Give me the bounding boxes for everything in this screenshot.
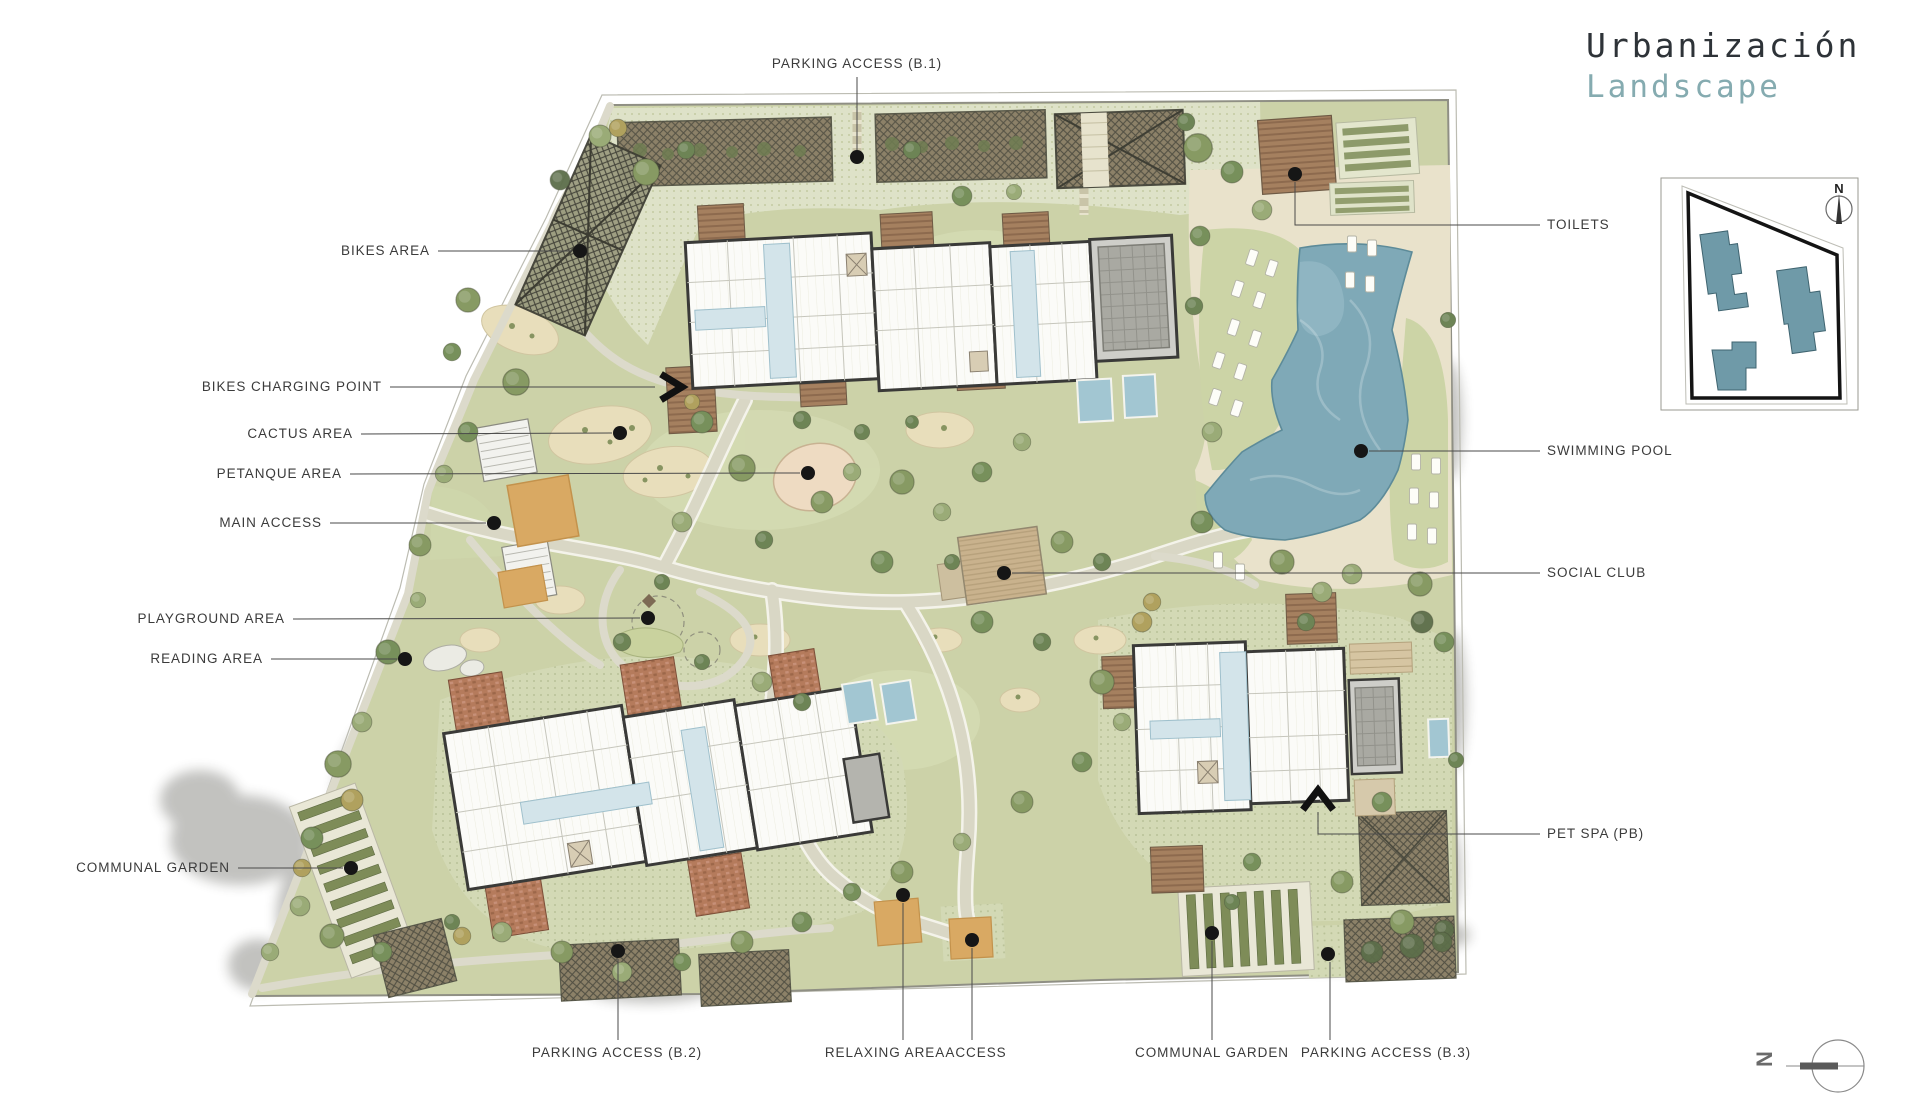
drawing-title-line2: Landscape (1586, 69, 1860, 105)
label-pet-spa: PET SPA (PB) (1547, 826, 1644, 842)
label-cactus-area: CACTUS AREA (247, 426, 353, 442)
label-bikes-charging-point: BIKES CHARGING POINT (202, 379, 382, 395)
label-petanque-area: PETANQUE AREA (217, 466, 342, 482)
communal-garden-right (1178, 882, 1314, 977)
label-parking-access-b2: PARKING ACCESS (B.2) (532, 1045, 702, 1061)
label-main-access: MAIN ACCESS (219, 515, 322, 531)
label-swimming-pool: SWIMMING POOL (1547, 443, 1673, 459)
label-parking-access-b1: PARKING ACCESS (B.1) (772, 56, 942, 72)
label-bikes-area: BIKES AREA (341, 243, 430, 259)
label-reading-area: READING AREA (150, 651, 263, 667)
entry-pavilion (1055, 110, 1186, 188)
relaxing-canopy (874, 898, 922, 946)
label-toilets: TOILETS (1547, 217, 1610, 233)
site-plan-drawing: N N (0, 0, 1920, 1113)
inset-north-label: N (1834, 181, 1843, 196)
label-parking-access-b3: PARKING ACCESS (B.3) (1301, 1045, 1471, 1061)
pool-planters (1330, 180, 1415, 215)
drawing-title: Urbanización Landscape (1586, 26, 1860, 105)
label-playground-area: PLAYGROUND AREA (138, 611, 285, 627)
label-relaxing-area: RELAXING AREA (825, 1045, 945, 1061)
landscape-masterplan-page: N N Urbanización Landscape PARKING ACCES… (0, 0, 1920, 1113)
drawing-title-line1: Urbanización (1586, 26, 1860, 65)
label-access: ACCESS (945, 1045, 1006, 1061)
compass-north-label: N (1752, 1051, 1777, 1067)
compass-icon: N (1752, 1040, 1864, 1092)
inset-key-map: N (1661, 178, 1858, 410)
label-communal-garden-right: COMMUNAL GARDEN (1135, 1045, 1289, 1061)
label-communal-garden-left: COMMUNAL GARDEN (76, 860, 230, 876)
label-social-club: SOCIAL CLUB (1547, 565, 1646, 581)
